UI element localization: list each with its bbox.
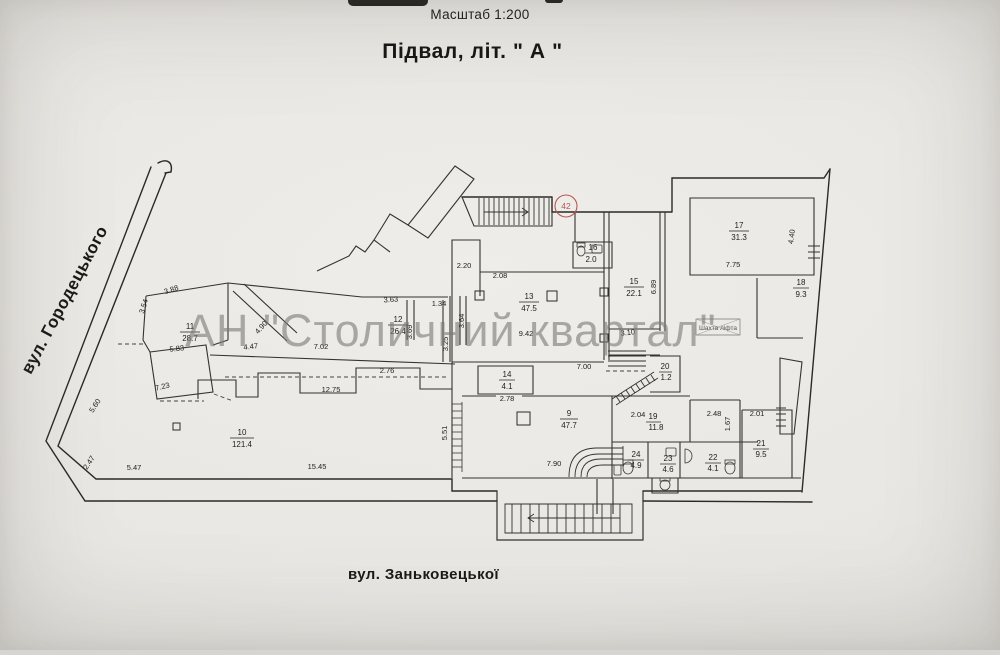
svg-text:47.5: 47.5 xyxy=(521,304,537,313)
dim-label: 9.42 xyxy=(519,329,534,338)
dim-label: 3.64 xyxy=(457,314,466,329)
svg-text:20: 20 xyxy=(661,362,670,371)
room-label-17: 1731.3 xyxy=(729,221,749,242)
dim-label: 3.69 xyxy=(405,325,414,340)
svg-text:4.1: 4.1 xyxy=(707,464,719,473)
toilet-icon xyxy=(660,478,670,490)
dim-label: 7.75 xyxy=(726,260,741,269)
dim-label: 2.47 xyxy=(81,454,97,471)
room-label-22: 224.1 xyxy=(705,453,721,473)
dim-label: 2.78 xyxy=(500,394,515,403)
room-label-13: 1347.5 xyxy=(519,292,539,313)
room-labels: 947.7 10121.4 1128.7 1226.4 1347.5 144.1… xyxy=(180,221,809,474)
svg-text:11.8: 11.8 xyxy=(649,423,665,432)
room-18-walls xyxy=(757,278,803,338)
dim-label: 5.83 xyxy=(169,343,184,353)
dim-label: 3.25 xyxy=(441,337,450,352)
svg-text:16: 16 xyxy=(589,243,598,252)
dim-label: 1.34 xyxy=(432,299,447,308)
svg-text:26.4: 26.4 xyxy=(390,327,406,336)
scale-label: Масштаб 1:200 xyxy=(0,7,960,22)
svg-text:10: 10 xyxy=(238,428,247,437)
dim-label: 1.67 xyxy=(723,417,732,432)
scanned-floor-plan-page: Масштаб 1:200 Підвал, літ. " А " вул. Го… xyxy=(0,0,1000,650)
room-label-20: 201.2 xyxy=(659,362,672,382)
room-label-10: 10121.4 xyxy=(230,428,254,449)
toilet-icon xyxy=(725,460,735,474)
svg-text:24: 24 xyxy=(632,450,641,459)
svg-text:17: 17 xyxy=(735,221,744,230)
dim-label: 12.75 xyxy=(322,385,341,394)
room-label-18: 189.3 xyxy=(793,278,809,299)
svg-text:19: 19 xyxy=(649,412,658,421)
svg-text:13: 13 xyxy=(525,292,534,301)
svg-text:9.5: 9.5 xyxy=(755,450,767,459)
svg-text:2.0: 2.0 xyxy=(585,255,597,264)
room-label-14: 144.1 xyxy=(499,370,515,391)
dim-label: 7.00 xyxy=(577,362,592,371)
page-title: Підвал, літ. " А " xyxy=(0,40,945,64)
svg-text:14: 14 xyxy=(503,370,512,379)
room-label-19: 1911.8 xyxy=(646,412,664,432)
dim-label: 2.76 xyxy=(380,366,395,375)
sink-icon xyxy=(614,465,621,475)
svg-text:22: 22 xyxy=(709,453,718,462)
room-label-15: 1522.1 xyxy=(624,277,644,298)
svg-text:31.3: 31.3 xyxy=(731,233,747,242)
svg-text:18: 18 xyxy=(797,278,806,287)
svg-text:4.1: 4.1 xyxy=(501,382,513,391)
dim-label: 4.47 xyxy=(243,341,258,351)
dim-label: 4.90 xyxy=(253,319,269,336)
svg-text:23: 23 xyxy=(664,454,673,463)
wall-ladder-strip xyxy=(452,402,462,472)
svg-text:22.1: 22.1 xyxy=(626,289,642,298)
svg-text:9.3: 9.3 xyxy=(795,290,807,299)
svg-text:28.7: 28.7 xyxy=(182,334,198,343)
svg-text:1.2: 1.2 xyxy=(660,373,672,382)
dim-label: 2.48 xyxy=(707,409,722,418)
svg-text:4.9: 4.9 xyxy=(630,461,642,470)
dim-label: 2.04 xyxy=(631,410,646,419)
columns xyxy=(173,288,608,430)
scan-artifact-top-small xyxy=(545,0,563,3)
dim-label: 15.45 xyxy=(308,462,327,471)
staircase-bottom xyxy=(497,479,643,540)
dim-label: 4.40 xyxy=(786,229,797,245)
room-label-23: 234.6 xyxy=(660,454,676,474)
dim-label: 3.10 xyxy=(620,327,635,337)
dim-label: 3.88 xyxy=(163,283,180,296)
unit-marker-number: 42 xyxy=(561,201,571,211)
light-shaft xyxy=(780,358,802,434)
svg-text:12: 12 xyxy=(394,315,403,324)
svg-text:121.4: 121.4 xyxy=(232,440,253,449)
dim-label: 5.60 xyxy=(87,397,103,414)
room-label-11: 1128.7 xyxy=(180,322,200,343)
floor-plan-drawing: 42 Шахта ліфта 947.7 10121.4 1128.7 1226… xyxy=(0,0,1000,650)
svg-text:9: 9 xyxy=(567,409,572,418)
dim-label: 7.02 xyxy=(314,342,329,351)
sink-icon xyxy=(685,449,692,463)
dim-label: 2.20 xyxy=(457,261,472,270)
svg-text:15: 15 xyxy=(630,277,639,286)
scan-artifact-top xyxy=(348,0,428,6)
svg-text:4.6: 4.6 xyxy=(662,465,674,474)
dim-label: 2.08 xyxy=(493,271,508,280)
duct-curves xyxy=(569,446,623,477)
stair-arrow xyxy=(528,514,620,522)
dim-label: 6.89 xyxy=(649,280,658,295)
toilet-icon xyxy=(577,243,585,256)
dim-label: 3.63 xyxy=(383,295,398,305)
dim-label: 7.90 xyxy=(547,459,562,468)
diagonal-ladder xyxy=(608,351,658,405)
dim-label: 2.01 xyxy=(750,409,765,418)
svg-text:11: 11 xyxy=(186,322,195,331)
unit-marker: 42 xyxy=(555,195,577,217)
dim-label: 5.51 xyxy=(440,426,449,441)
dim-label: 3.54 xyxy=(137,298,150,315)
room-label-9: 947.7 xyxy=(560,409,578,430)
stair-arrow xyxy=(484,208,528,216)
room-label-16: 162.0 xyxy=(585,243,601,264)
room-label-24: 244.9 xyxy=(628,450,644,470)
street-label-zankovetskoi: вул. Заньковецької xyxy=(348,566,499,583)
dim-label: 7.23 xyxy=(154,380,170,392)
dim-label: 5.47 xyxy=(127,463,142,472)
svg-text:21: 21 xyxy=(757,439,766,448)
lift-shaft-label: Шахта ліфта xyxy=(699,324,737,332)
staircase-top xyxy=(462,197,552,226)
svg-text:47.7: 47.7 xyxy=(561,421,577,430)
